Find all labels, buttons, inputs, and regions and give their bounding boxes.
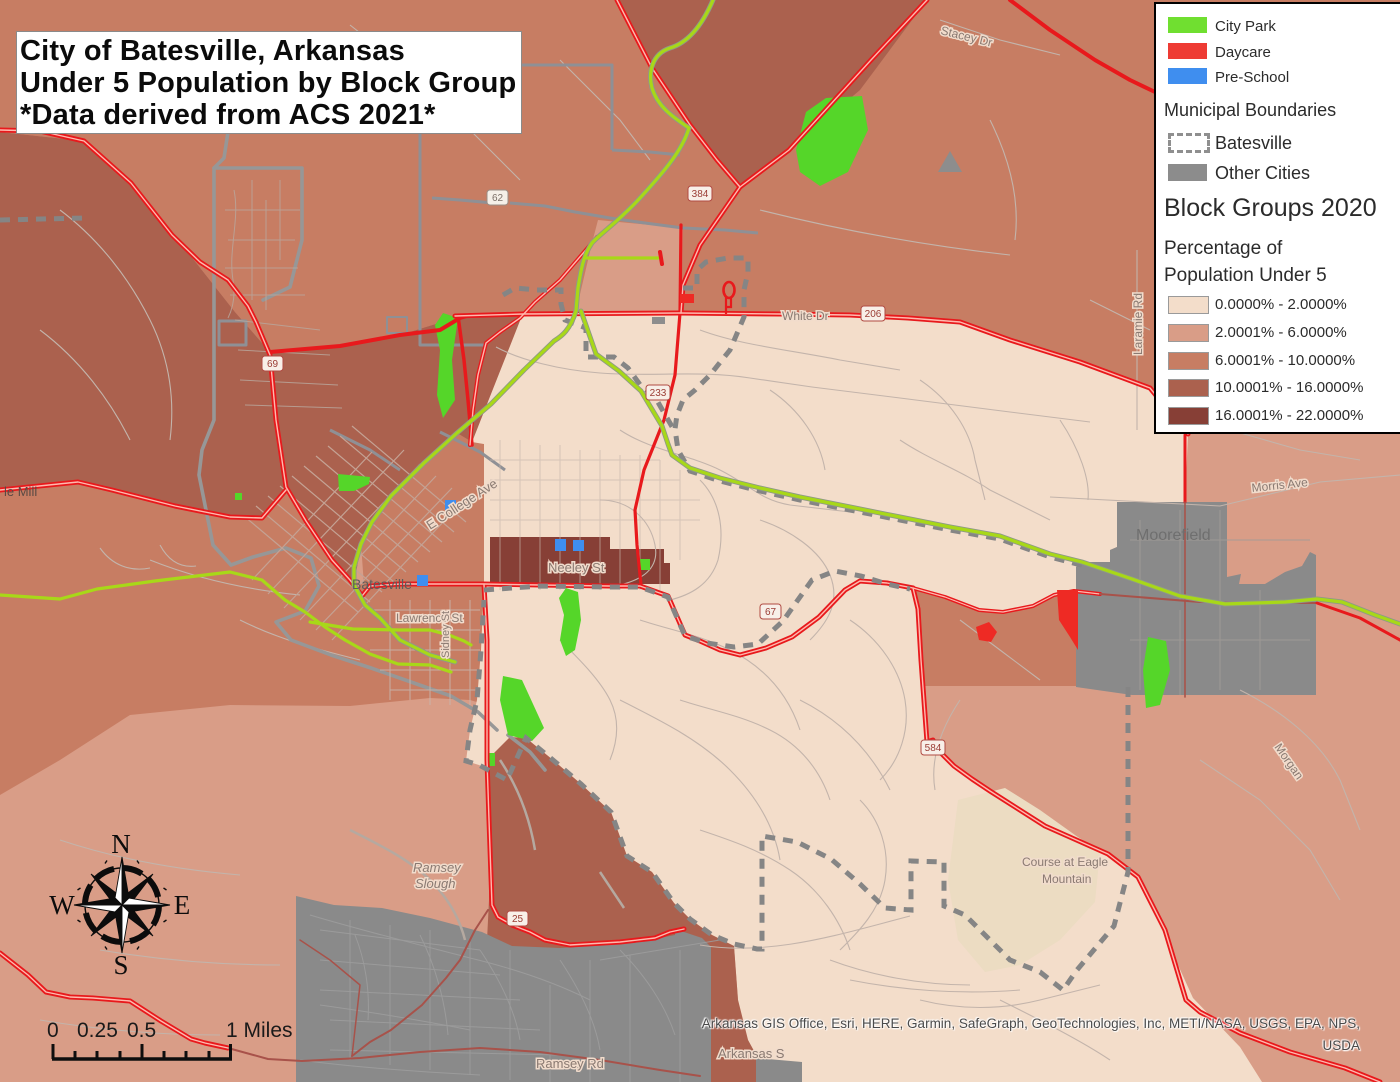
svg-text:N: N [111, 829, 131, 859]
svg-text:206: 206 [865, 309, 882, 320]
svg-text:Ramsey Rd: Ramsey Rd [536, 1056, 604, 1071]
svg-text:25: 25 [512, 914, 524, 925]
svg-text:E: E [174, 890, 191, 920]
svg-text:Sidney St: Sidney St [440, 611, 452, 658]
svg-text:69: 69 [267, 359, 279, 370]
svg-text:Batesville: Batesville [352, 576, 412, 592]
svg-text:Ramsey: Ramsey [413, 860, 462, 875]
svg-text:Course at Eagle: Course at Eagle [1022, 855, 1108, 869]
svg-text:Laramie Rd: Laramie Rd [1131, 293, 1145, 355]
svg-text:67: 67 [765, 607, 777, 618]
svg-text:W: W [49, 890, 75, 920]
svg-text:S: S [113, 950, 128, 980]
svg-text:233: 233 [650, 388, 667, 399]
svg-text:384: 384 [692, 189, 709, 200]
svg-text:Slough: Slough [415, 876, 455, 891]
svg-text:62: 62 [492, 193, 504, 204]
svg-text:Lawrence St: Lawrence St [396, 611, 463, 625]
svg-text:Neeley St: Neeley St [548, 560, 605, 575]
svg-text:584: 584 [925, 743, 942, 754]
svg-text:White Dr: White Dr [782, 309, 829, 323]
svg-text:le Mill: le Mill [4, 484, 37, 499]
svg-text:Mountain: Mountain [1042, 872, 1091, 886]
svg-text:Moorefield: Moorefield [1136, 527, 1211, 544]
